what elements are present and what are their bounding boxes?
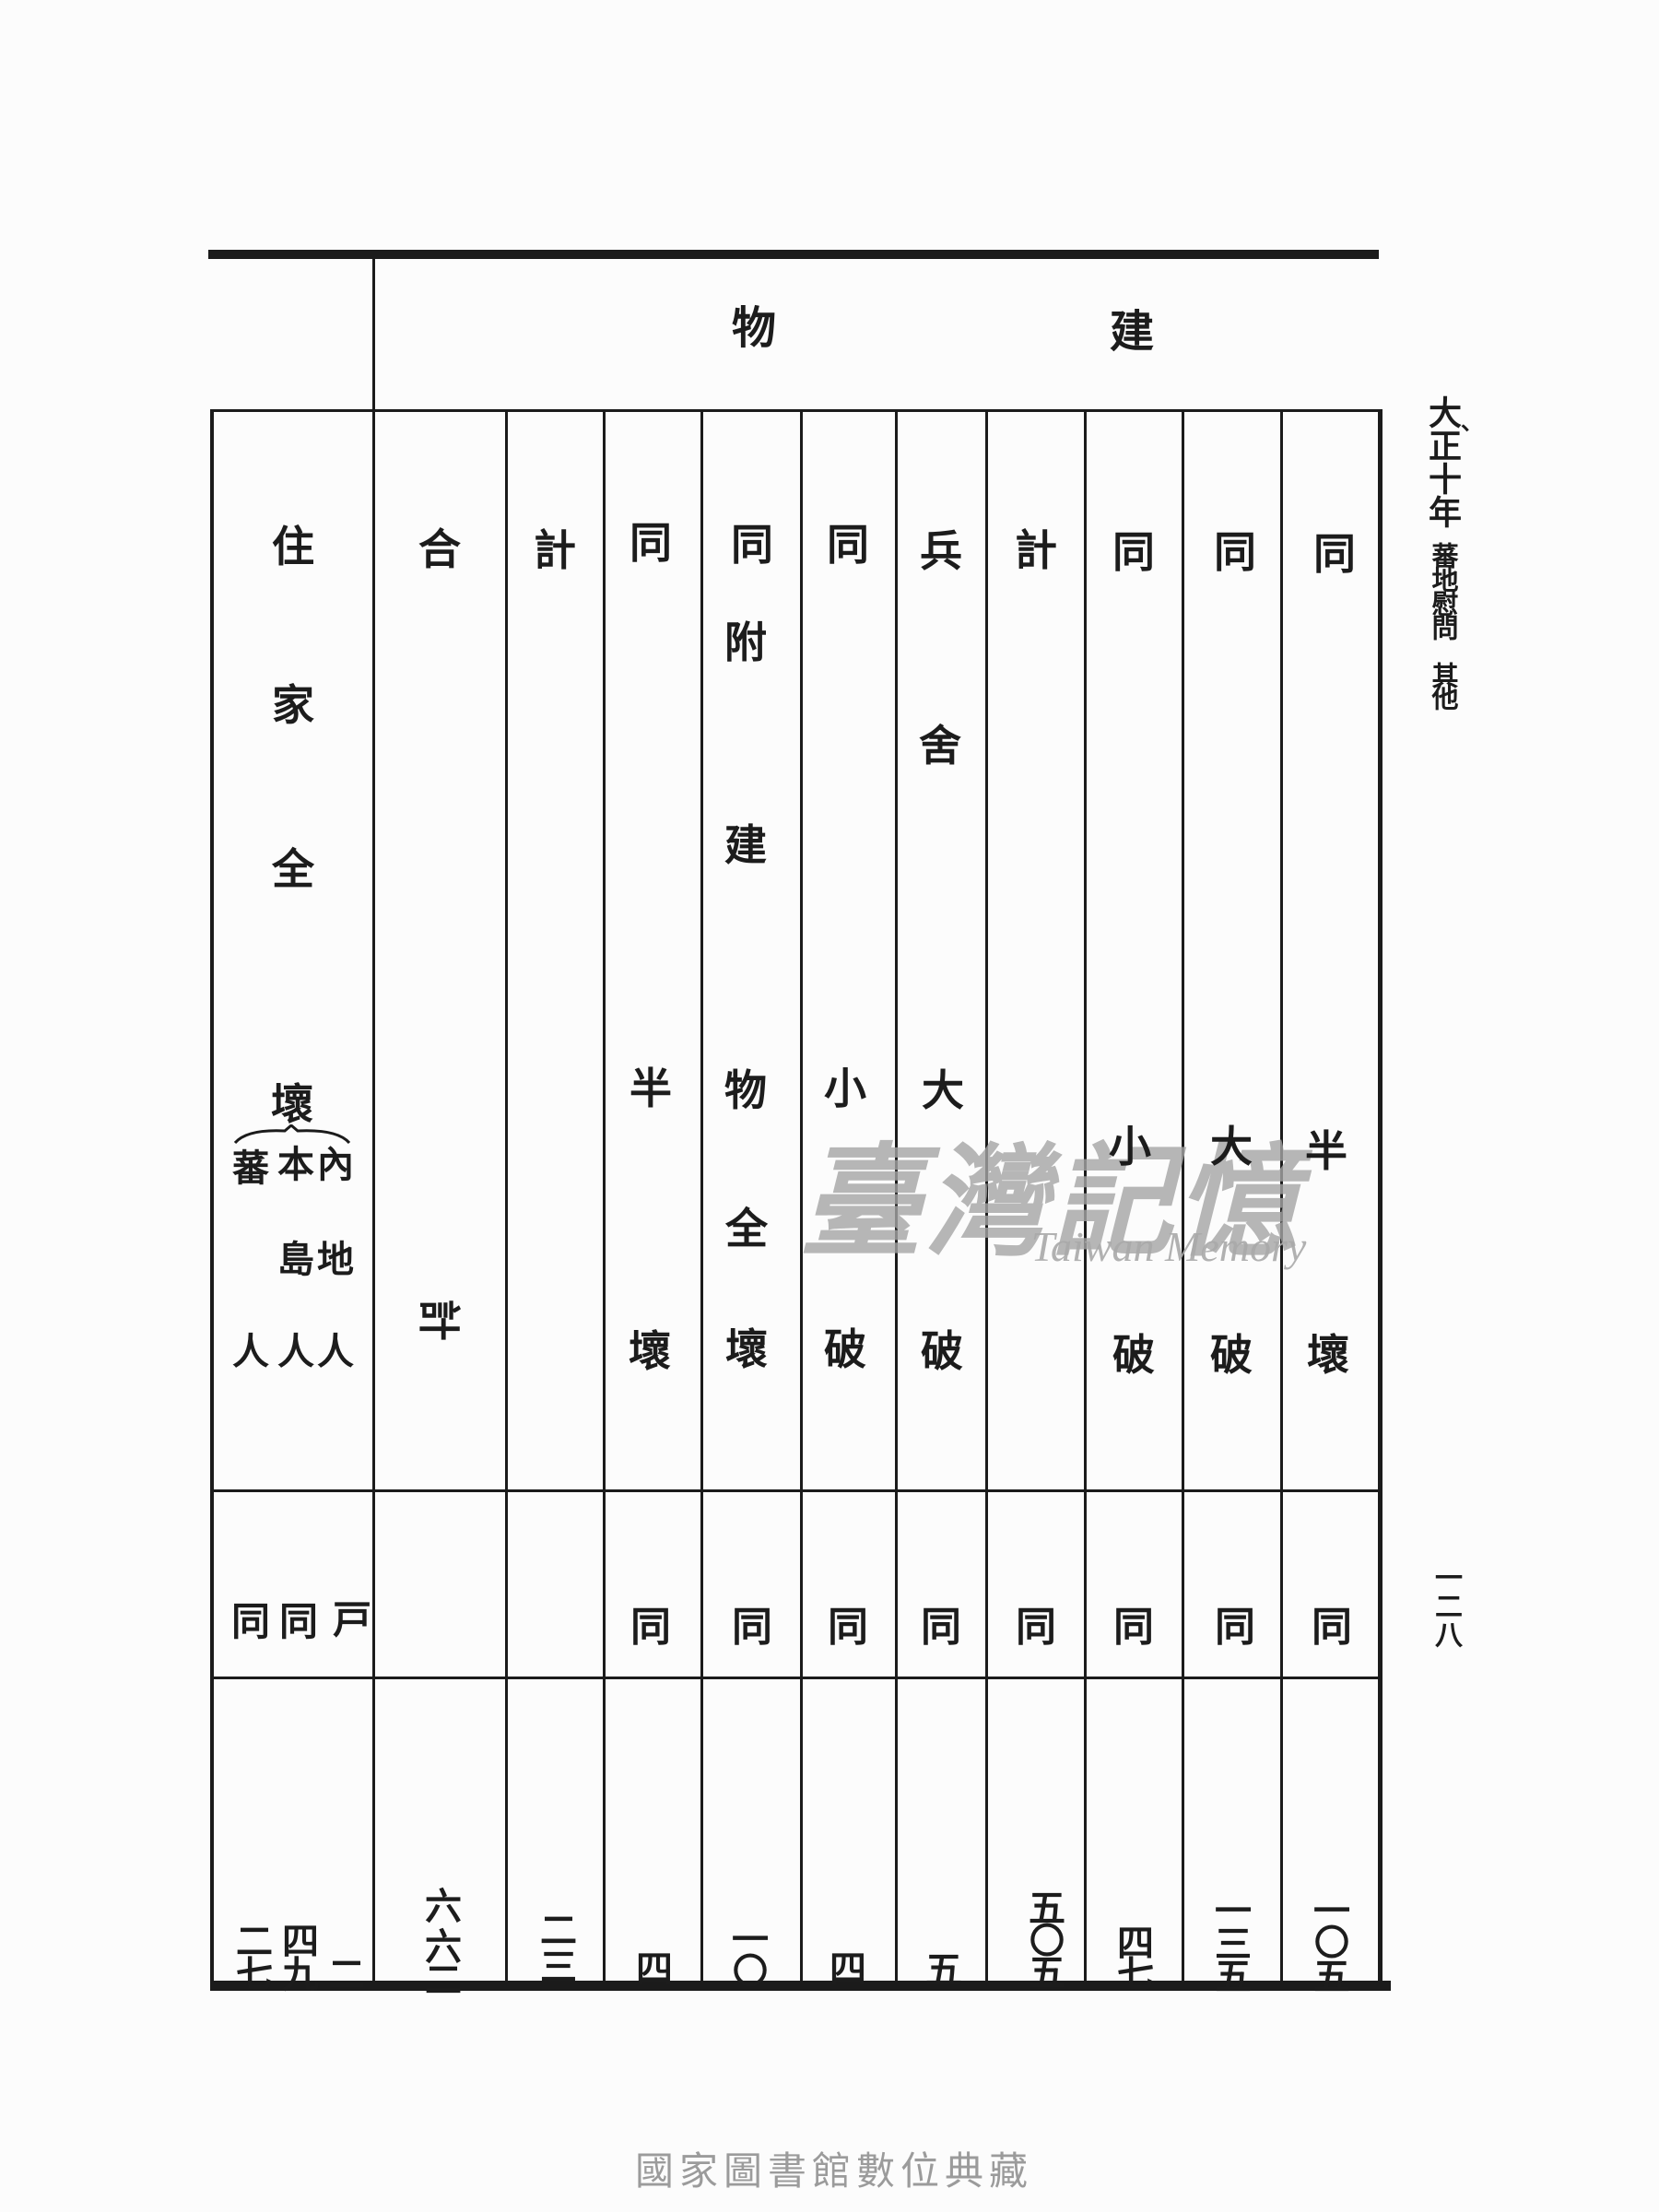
table-glyph: 戸 — [333, 1602, 371, 1641]
margin-other-title: 其他 — [1429, 662, 1455, 706]
table-glyph: 物 — [724, 1070, 767, 1112]
table-glyph: 破 — [824, 1329, 866, 1371]
table-border-top — [210, 409, 1382, 412]
table-glyph: 物 — [732, 307, 776, 351]
table-glyph: 壞 — [629, 1331, 671, 1373]
table-glyph: 破 — [921, 1331, 963, 1373]
table-glyph: 七 — [236, 1957, 273, 1994]
table-glyph: 壞 — [271, 1084, 313, 1126]
column-line — [700, 412, 703, 1981]
table-glyph: 計 — [534, 530, 576, 572]
table-glyph: 七 — [1117, 1957, 1154, 1994]
page-number: 一二八 — [1431, 1563, 1459, 1649]
table-glyph: 五 — [925, 1952, 962, 1989]
row-divider-lower — [212, 1677, 1379, 1679]
table-glyph: 蕃 — [232, 1150, 269, 1187]
row-divider-upper — [212, 1489, 1379, 1492]
table-glyph: 、 — [1461, 412, 1483, 434]
table-glyph: 同 — [630, 1607, 671, 1648]
table-glyph: 大 — [1210, 1126, 1253, 1169]
table-glyph: 五 — [1215, 1959, 1252, 1995]
table-glyph: 計 — [417, 1299, 459, 1341]
margin-subject-title: 蕃地慰問 — [1429, 542, 1455, 638]
table-glyph: 五 — [1029, 1890, 1065, 1927]
table-glyph: 兵 — [920, 531, 962, 573]
table-glyph: 同 — [921, 1607, 961, 1648]
column-line — [372, 412, 375, 1981]
table-glyph: 大 — [922, 1070, 964, 1112]
column-line — [505, 412, 508, 1981]
table-glyph: 同 — [1312, 1607, 1352, 1648]
table-glyph: 同 — [1215, 1607, 1255, 1648]
table-glyph: 破 — [1210, 1335, 1253, 1377]
top-rule — [208, 250, 1379, 259]
table-glyph: 破 — [1112, 1335, 1155, 1377]
table-glyph: 半 — [1305, 1131, 1347, 1173]
table-glyph: 附 — [724, 622, 767, 665]
table-glyph: 本 — [277, 1147, 314, 1183]
table-glyph: 島 — [277, 1241, 314, 1278]
table-glyph: 同 — [1112, 532, 1155, 574]
table-glyph: 小 — [1109, 1126, 1151, 1169]
table-glyph: 同 — [231, 1604, 270, 1642]
table-glyph: 二 — [425, 1962, 462, 1999]
table-glyph: 二 — [328, 1957, 365, 1994]
table-glyph: 五 — [1029, 1955, 1065, 1992]
table-glyph: 建 — [1110, 311, 1154, 355]
table-glyph: 計 — [1015, 530, 1057, 572]
table-glyph: 同 — [828, 1607, 868, 1648]
table-glyph: 〇 — [733, 1955, 768, 1990]
table-glyph: 舍 — [919, 725, 961, 768]
table-glyph: 建 — [724, 825, 767, 867]
table-glyph: 同 — [279, 1604, 318, 1642]
table-glyph: 四 — [636, 1951, 673, 1988]
table-glyph: 同 — [827, 524, 869, 567]
table-glyph: 九 — [282, 1957, 319, 1994]
table-border-bottom — [210, 1981, 1391, 1991]
table-glyph: 同 — [732, 1607, 772, 1648]
table-glyph: 小 — [824, 1068, 866, 1111]
table-glyph: 同 — [1214, 532, 1256, 574]
table-glyph: 合 — [418, 529, 461, 571]
table-glyph: 三 — [540, 1949, 577, 1986]
table-glyph: 壞 — [725, 1329, 768, 1371]
table-glyph: 全 — [725, 1208, 768, 1251]
table-border-right — [1378, 409, 1382, 1989]
table-glyph: 全 — [272, 849, 314, 891]
table-glyph: 地 — [317, 1241, 354, 1278]
table-glyph: 四 — [829, 1951, 866, 1988]
header-vertical-line — [372, 259, 375, 411]
table-glyph: 同 — [1113, 1607, 1154, 1648]
table-glyph: 五 — [1313, 1959, 1350, 1995]
scanned-page: 臺灣記憶 Taiwan Memory 大正十年 蕃地慰問 其他 一二八 物建住合… — [0, 0, 1659, 2212]
table-glyph: 同 — [629, 523, 672, 565]
footer-caption: 國家圖書館數位典藏 — [635, 2140, 1033, 2196]
table-glyph: 二 — [540, 1912, 577, 1949]
table-glyph: 壞 — [1307, 1335, 1349, 1377]
table-border-left — [210, 409, 214, 1989]
table-glyph: 同 — [1016, 1607, 1056, 1648]
table-glyph: 同 — [1313, 534, 1356, 576]
table-glyph: 半 — [629, 1068, 672, 1111]
table-glyph: 同 — [731, 524, 773, 567]
table-glyph: 住 — [272, 526, 314, 569]
table-glyph: 六 — [425, 1888, 462, 1925]
table-glyph: 人 — [232, 1334, 269, 1371]
table-glyph: 家 — [272, 685, 314, 727]
table-glyph: 內 — [317, 1147, 354, 1183]
table-glyph: 人 — [317, 1334, 354, 1371]
watermark-latin: Taiwan Memory — [1031, 1222, 1307, 1271]
column-line — [603, 412, 606, 1981]
margin-era-title: 大正十年 — [1426, 395, 1459, 528]
table-glyph: 人 — [277, 1334, 314, 1371]
